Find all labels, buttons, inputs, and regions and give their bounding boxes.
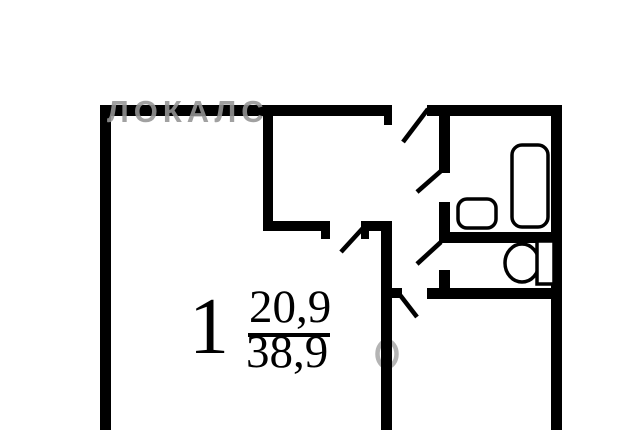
room-number: 1 [189, 287, 229, 367]
label-layer: 1 20,9 38,9 [0, 0, 640, 430]
brand-watermark: ЛОКАЛС [107, 96, 269, 127]
living-area-value: 20,9 [249, 284, 331, 331]
floor-plan-image: 1 20,9 38,9 ЛОКАЛС [0, 0, 640, 430]
total-area-value: 38,9 [246, 329, 328, 376]
